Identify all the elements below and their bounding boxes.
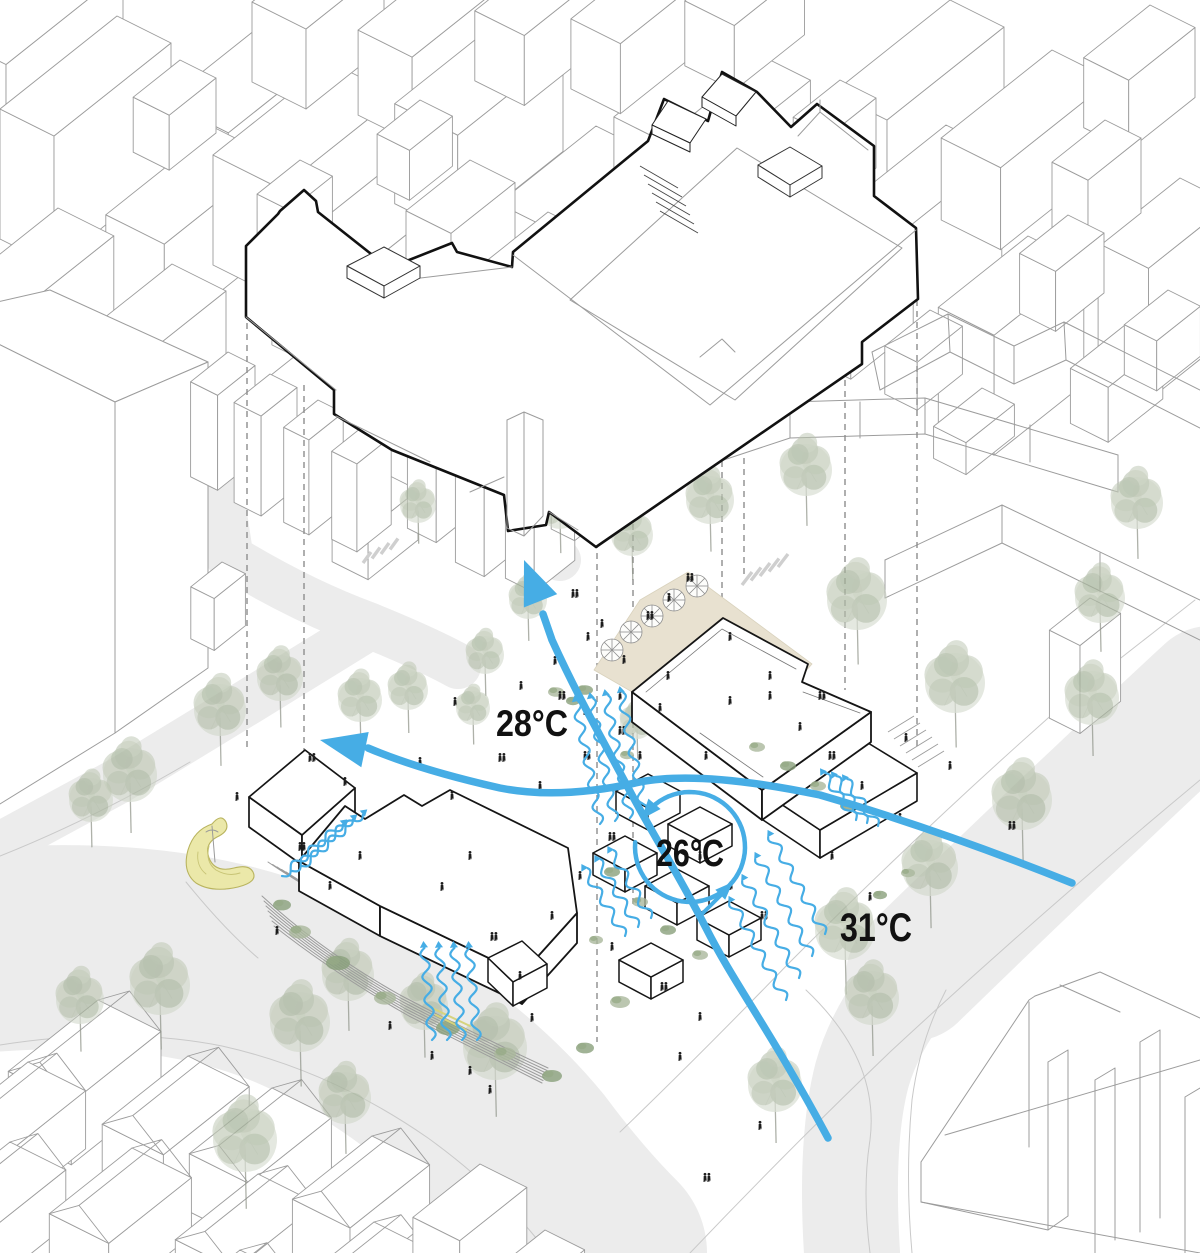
svg-text:26°C: 26°C [656, 833, 724, 875]
svg-text:31°C: 31°C [840, 906, 912, 950]
svg-text:28°C: 28°C [496, 703, 568, 744]
